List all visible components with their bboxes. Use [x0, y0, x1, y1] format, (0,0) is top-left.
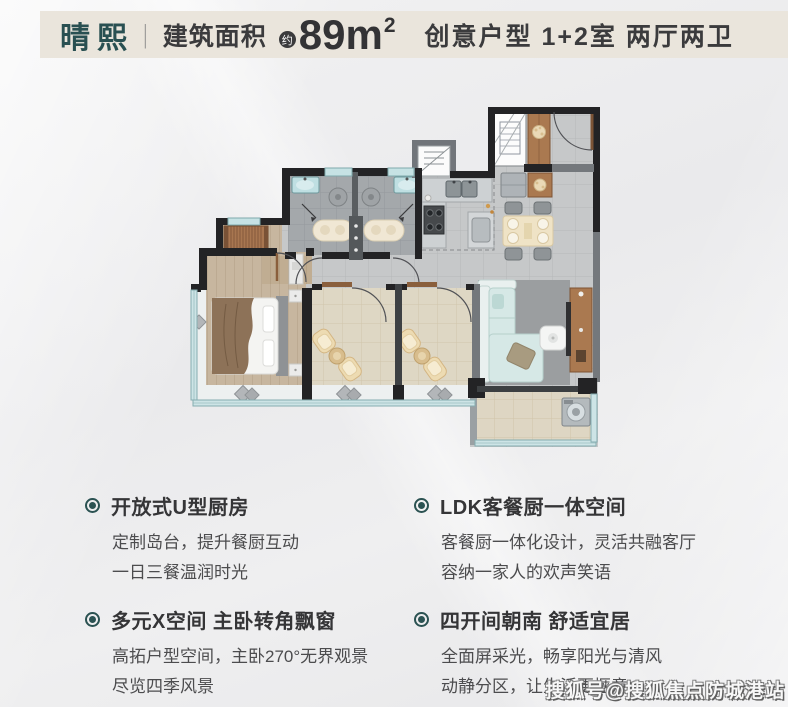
area-superscript: 2 [384, 14, 396, 37]
feature-line: 容纳一家人的欢声笑语 [441, 558, 744, 588]
feature-x-space: 多元X空间 主卧转角飘窗 高拓户型空间，主卧270°无界观景 尽览四季风景 [85, 605, 415, 702]
feature-title: LDK客餐厨一体空间 [440, 491, 626, 520]
feature-open-kitchen: 开放式U型厨房 定制岛台，提升餐厨互动 一日三餐温润时光 [85, 491, 415, 588]
utility-shaft [494, 112, 526, 166]
wardrobe [224, 226, 268, 249]
washing-machine [562, 398, 590, 426]
bullet-icon [85, 498, 100, 513]
feature-line: 一日三餐温润时光 [112, 558, 415, 588]
feature-line: 尽览四季风景 [112, 672, 415, 702]
tv-cabinet [566, 288, 592, 372]
approx-badge: 约 [279, 31, 296, 48]
feature-line: 高拓户型空间，主卧270°无界观景 [112, 642, 415, 672]
bed [212, 296, 288, 376]
feature-body: 客餐厨一体化设计，灵活共融客厅 容纳一家人的欢声笑语 [441, 528, 744, 588]
area-value: 89m2 [299, 14, 395, 56]
header-band: 晴熙 | 建筑面积 约 89m2 创意户型 1+2室 两厅两卫 [40, 11, 788, 58]
feature-body: 高拓户型空间，主卧270°无界观景 尽览四季风景 [112, 642, 415, 702]
fridge [501, 173, 526, 197]
bullet-icon [414, 612, 429, 627]
feature-line: 全面屏采光，畅享阳光与清风 [441, 642, 744, 672]
feature-body: 定制岛台，提升餐厨互动 一日三餐温润时光 [112, 528, 415, 588]
entry-closet [528, 112, 550, 168]
header-separator: | [144, 19, 148, 50]
feature-title: 四开间朝南 舒适宜居 [440, 605, 631, 634]
bullet-icon [414, 498, 429, 513]
hallway-wood [262, 256, 312, 284]
floor-plan [186, 100, 602, 452]
project-name: 晴熙 [60, 13, 134, 57]
feature-line: 客餐厨一体化设计，灵活共融客厅 [441, 528, 744, 558]
side-cabinet [528, 173, 552, 197]
layout-type-text: 创意户型 1+2室 两厅两卫 [425, 17, 734, 53]
feature-line: 定制岛台，提升餐厨互动 [112, 528, 415, 558]
feature-ldk-space: LDK客餐厨一体空间 客餐厨一体化设计，灵活共融客厅 容纳一家人的欢声笑语 [414, 491, 744, 588]
feature-title: 多元X空间 主卧转角飘窗 [111, 605, 336, 634]
coffee-table [540, 326, 566, 350]
bullet-icon [85, 612, 100, 627]
feature-title: 开放式U型厨房 [111, 491, 249, 520]
area-label: 建筑面积 [163, 17, 267, 53]
watermark: 搜狐号@搜狐焦点防城港站 [545, 676, 785, 703]
